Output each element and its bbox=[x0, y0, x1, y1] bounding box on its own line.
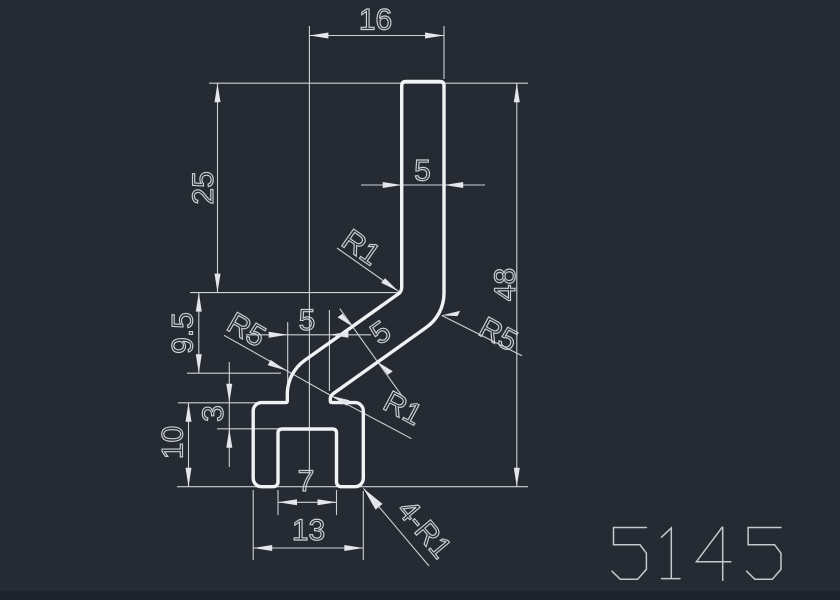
svg-text:25: 25 bbox=[187, 171, 220, 204]
svg-text:5: 5 bbox=[414, 155, 431, 188]
svg-text:7: 7 bbox=[298, 465, 315, 498]
svg-text:10: 10 bbox=[157, 426, 190, 459]
svg-text:9.5: 9.5 bbox=[167, 312, 200, 354]
svg-text:3: 3 bbox=[197, 405, 230, 422]
svg-text:5: 5 bbox=[299, 304, 316, 337]
svg-text:16: 16 bbox=[359, 4, 392, 37]
svg-text:48: 48 bbox=[489, 268, 522, 301]
svg-text:13: 13 bbox=[292, 514, 325, 547]
